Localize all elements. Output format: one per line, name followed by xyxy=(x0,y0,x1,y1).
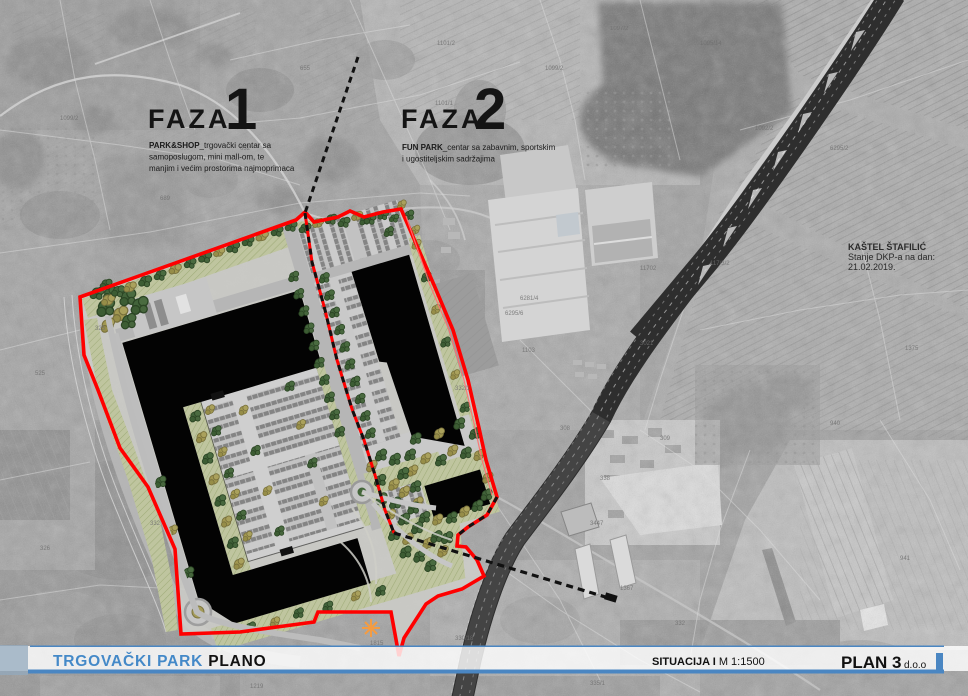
svg-text:940: 940 xyxy=(830,421,841,427)
svg-text:3447: 3447 xyxy=(590,521,604,527)
svg-text:11702: 11702 xyxy=(640,266,657,272)
svg-text:Stanje DKP-a na dan:: Stanje DKP-a na dan: xyxy=(848,252,935,262)
svg-text:6281/4: 6281/4 xyxy=(520,296,539,302)
svg-text:332: 332 xyxy=(675,621,686,627)
svg-text:PLAN 3: PLAN 3 xyxy=(841,653,901,672)
svg-text:1095/14: 1095/14 xyxy=(700,41,722,47)
svg-text:PARK&SHOP_trgovački centar sa: PARK&SHOP_trgovački centar sa xyxy=(149,141,272,150)
svg-text:1101/2: 1101/2 xyxy=(437,41,456,47)
svg-text:1092/2: 1092/2 xyxy=(755,126,774,132)
svg-text:332: 332 xyxy=(150,521,161,527)
svg-text:KAŠTEL ŠTAFILIĆ: KAŠTEL ŠTAFILIĆ xyxy=(848,241,927,252)
svg-text:525: 525 xyxy=(35,371,46,377)
svg-text:941: 941 xyxy=(900,556,911,562)
svg-text:1: 1 xyxy=(225,77,257,142)
svg-text:117/3/2: 117/3/2 xyxy=(710,261,730,267)
svg-text:1367: 1367 xyxy=(620,586,634,592)
svg-text:samoposlugom, mini mall-om, te: samoposlugom, mini mall-om, te xyxy=(149,153,265,162)
svg-text:330/18: 330/18 xyxy=(455,636,474,642)
svg-text:335/1: 335/1 xyxy=(590,681,606,687)
svg-text:1099/2: 1099/2 xyxy=(545,66,564,72)
svg-text:309: 309 xyxy=(660,436,671,442)
svg-text:21.02.2019.: 21.02.2019. xyxy=(848,262,896,272)
svg-text:689: 689 xyxy=(160,196,171,202)
svg-text:d.o.o: d.o.o xyxy=(904,660,927,671)
svg-text:FAZA: FAZA xyxy=(148,104,231,134)
svg-text:1103: 1103 xyxy=(522,348,536,354)
svg-text:6295/2: 6295/2 xyxy=(830,146,849,152)
svg-text:1219: 1219 xyxy=(250,684,264,690)
svg-text:655: 655 xyxy=(300,66,311,72)
svg-text:326: 326 xyxy=(40,546,51,552)
svg-text:325: 325 xyxy=(95,326,106,332)
svg-text:manjim i većim prostorima najm: manjim i većim prostorima najmoprimaca xyxy=(149,164,295,173)
svg-text:3021: 3021 xyxy=(640,341,654,347)
svg-text:308: 308 xyxy=(560,426,571,432)
svg-text:TRGOVAČKI PARK PLANO: TRGOVAČKI PARK PLANO xyxy=(53,652,266,670)
svg-text:338: 338 xyxy=(600,476,611,482)
svg-text:6295/6: 6295/6 xyxy=(505,311,524,317)
svg-text:FAZA: FAZA xyxy=(401,104,484,134)
svg-text:1375: 1375 xyxy=(905,346,919,352)
svg-text:2: 2 xyxy=(474,77,506,142)
svg-text:i ugostiteljskim sadržajima: i ugostiteljskim sadržajima xyxy=(402,155,495,164)
svg-text:1097/2: 1097/2 xyxy=(610,26,629,32)
svg-text:332/1: 332/1 xyxy=(455,386,471,392)
svg-text:1099/2: 1099/2 xyxy=(60,116,79,122)
svg-text:FUN PARK_centar sa zabavnim, s: FUN PARK_centar sa zabavnim, sportskim xyxy=(402,143,556,152)
svg-text:SITUACIJA I M 1:1500: SITUACIJA I M 1:1500 xyxy=(652,656,765,668)
